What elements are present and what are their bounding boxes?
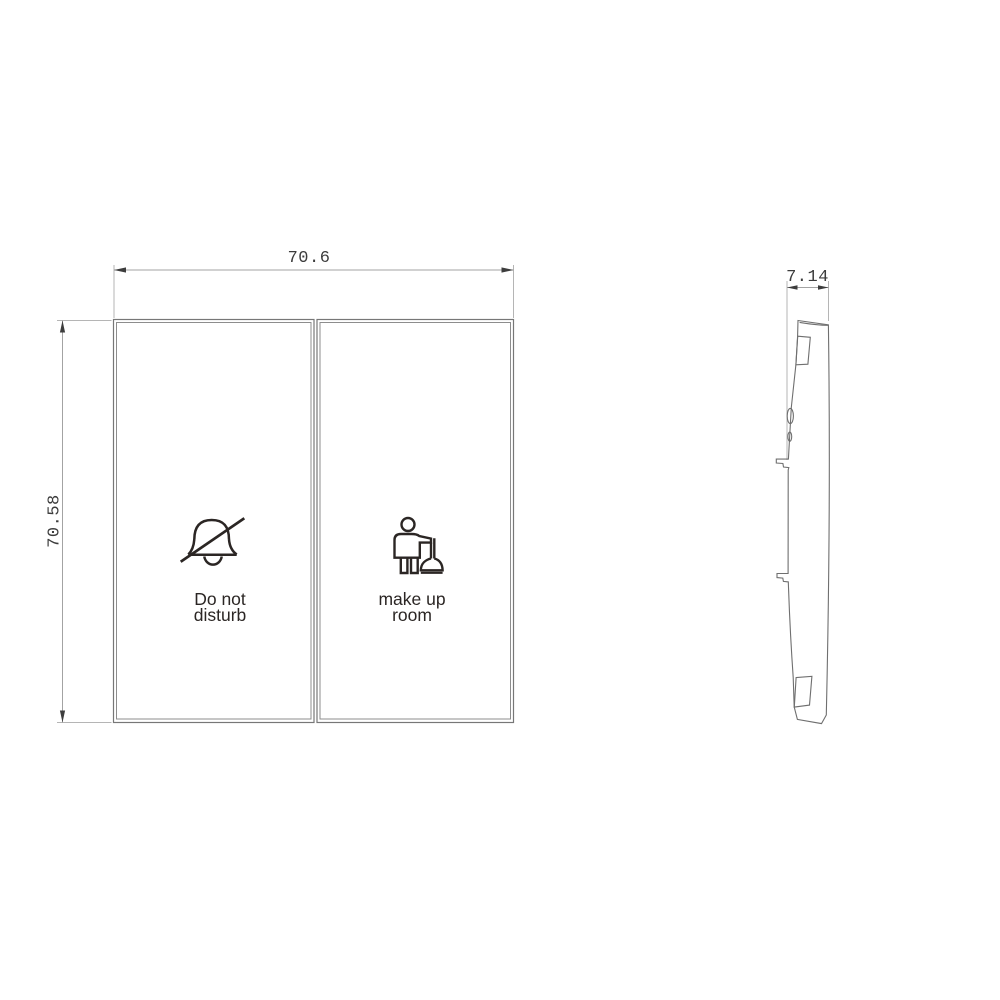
arrowhead-down-icon (60, 711, 65, 723)
side-profile-outline (776, 321, 829, 724)
arrowhead-left-icon (114, 267, 126, 272)
label-make-up-room: make up room (378, 592, 445, 623)
technical-drawing-canvas: 70.6 70.58 (0, 0, 1000, 1000)
person-right-leg (411, 558, 418, 573)
dimension-width-label: 70.6 (288, 249, 331, 268)
dimension-height-label: 70.58 (46, 494, 65, 548)
no-bell-icon (181, 518, 245, 564)
bell-skirt-right (229, 540, 237, 555)
person-left-leg (401, 558, 408, 573)
dimension-height: 70.58 (46, 321, 112, 723)
side-profile (776, 321, 829, 724)
front-view: 70.6 70.58 (46, 249, 514, 723)
arrowhead-up-icon (60, 321, 65, 333)
side-bottom-clip (794, 676, 812, 707)
technical-drawing-page: 70.6 70.58 (0, 0, 1000, 1000)
bell-clapper (204, 557, 221, 565)
person-body-and-arm (395, 534, 432, 558)
person-head (402, 518, 415, 531)
button-do-not-disturb (114, 320, 315, 723)
side-top-clip (796, 336, 810, 365)
button-inner-outline (320, 323, 511, 720)
bell-dome (194, 520, 229, 540)
button-outline (317, 320, 514, 723)
side-view: 7.14 (776, 268, 829, 724)
label-do-not-disturb: Do not disturb (194, 592, 247, 623)
arrowhead-right-icon (502, 267, 514, 272)
label-line: room (392, 605, 432, 625)
mop-head (421, 559, 443, 571)
button-make-up-room (317, 320, 514, 723)
dimension-depth-label: 7.14 (786, 268, 829, 287)
dimension-width: 70.6 (114, 249, 514, 318)
housekeeping-icon (395, 518, 443, 573)
label-line: disturb (194, 605, 247, 625)
